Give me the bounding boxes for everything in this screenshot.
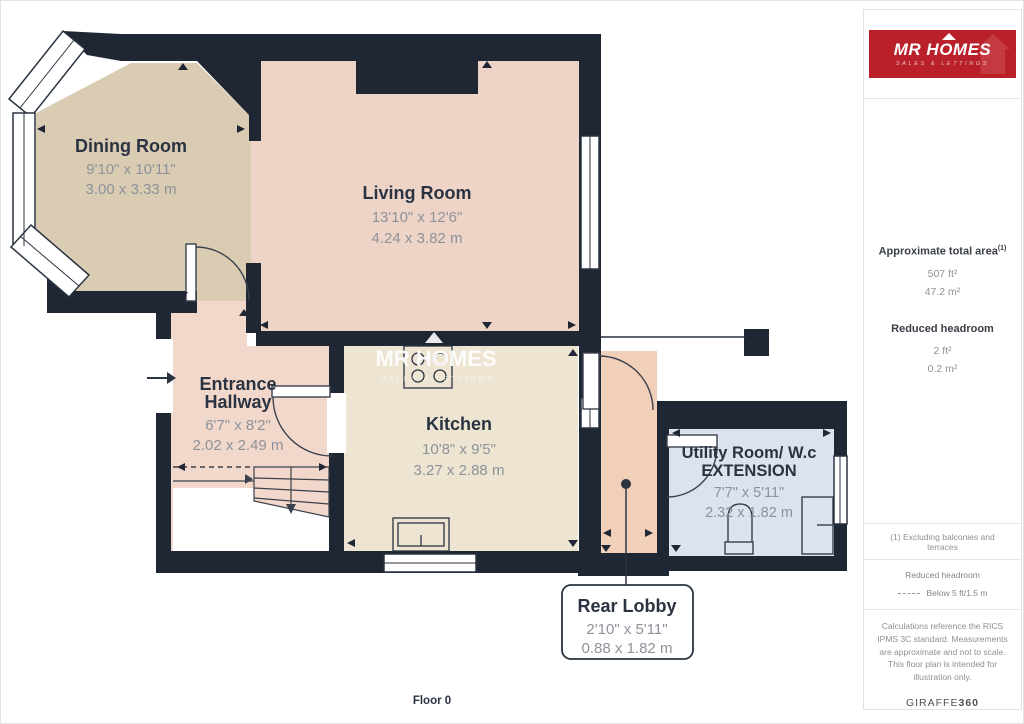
utility-title-line2: EXTENSION xyxy=(701,462,796,480)
total-area-heading: Approximate total area(1) xyxy=(864,245,1021,258)
kitchen-dims-ft: 10'8" x 9'5" xyxy=(422,441,496,458)
lobby-door-icon xyxy=(583,353,599,409)
room-rear-lobby xyxy=(601,351,657,553)
headroom-m: 0.2 m² xyxy=(864,361,1021,379)
hallway-dims-ft: 6'7" x 8'2" xyxy=(205,417,271,434)
legend-heading: Reduced headroom xyxy=(864,570,1021,580)
utility-dims-ft: 7'7" x 5'11" xyxy=(714,485,784,501)
rear-lobby-title: Rear Lobby xyxy=(577,596,676,616)
headroom-ft: 2 ft² xyxy=(864,343,1021,361)
floorplan-page: MR HOMES SALES & LETTINGS Dining Room 9'… xyxy=(0,0,1024,724)
rear-lobby-dims-ft: 2'10" x 5'11" xyxy=(586,621,667,638)
dining-room-dims-m: 3.00 x 3.33 m xyxy=(86,181,177,198)
kitchen-door-icon xyxy=(272,386,330,397)
info-sidebar: MR HOMES SALES & LETTINGS Approximate to… xyxy=(863,9,1022,710)
total-area-m: 47.2 m² xyxy=(864,284,1021,302)
dining-room-title: Dining Room xyxy=(75,136,187,156)
logo-roof-icon xyxy=(942,33,956,40)
hallway-dims-m: 2.02 x 2.49 m xyxy=(193,437,284,454)
floor-label: Floor 0 xyxy=(1,695,863,707)
watermark-subtitle: SALES & LETTINGS xyxy=(381,376,494,383)
rear-lobby-dims-m: 0.88 x 1.82 m xyxy=(582,640,673,657)
area-section: Approximate total area(1) 507 ft² 47.2 m… xyxy=(864,99,1021,524)
giraffe360-brand: GIRAFFE360 xyxy=(873,696,1012,712)
logo-title: MR HOMES xyxy=(894,41,992,58)
footnote-section: (1) Excluding balconies and terraces xyxy=(864,524,1021,560)
total-area-ft: 507 ft² xyxy=(864,266,1021,284)
disclaimer-section: Calculations reference the RICS IPMS 3C … xyxy=(864,610,1021,709)
living-room-title: Living Room xyxy=(363,183,472,203)
dining-room-dims-ft: 9'10" x 10'11" xyxy=(86,161,176,178)
utility-title-line1: Utility Room/ W.c xyxy=(682,444,817,462)
logo-section: MR HOMES SALES & LETTINGS xyxy=(864,10,1021,99)
disclaimer-text: Calculations reference the RICS IPMS 3C … xyxy=(873,620,1012,684)
living-room-dims-m: 4.24 x 3.82 m xyxy=(372,230,463,247)
living-room-dims-ft: 13'10" x 12'6" xyxy=(372,209,463,226)
footnote-text: (1) Excluding balconies and terraces xyxy=(874,532,1011,552)
floorplan-drawing: MR HOMES SALES & LETTINGS Dining Room 9'… xyxy=(1,1,863,724)
legend-value: Below 5 ft/1.5 m xyxy=(927,588,988,598)
hallway-title-line2: Hallway xyxy=(204,392,271,412)
kitchen-title: Kitchen xyxy=(426,414,492,434)
headroom-heading: Reduced headroom xyxy=(864,323,1021,335)
watermark-title: MR HOMES xyxy=(376,346,497,371)
legend-section: Reduced headroom Below 5 ft/1.5 m xyxy=(864,560,1021,610)
utility-dims-m: 2.32 x 1.82 m xyxy=(705,505,793,521)
dashed-line-swatch xyxy=(898,593,920,594)
mr-homes-logo: MR HOMES SALES & LETTINGS xyxy=(869,30,1016,78)
hallway-title-line1: Entrance xyxy=(199,374,276,394)
area-footnote-marker: (1) xyxy=(998,245,1007,252)
kitchen-dims-m: 3.27 x 2.88 m xyxy=(414,462,505,479)
logo-subtitle: SALES & LETTINGS xyxy=(896,61,989,67)
